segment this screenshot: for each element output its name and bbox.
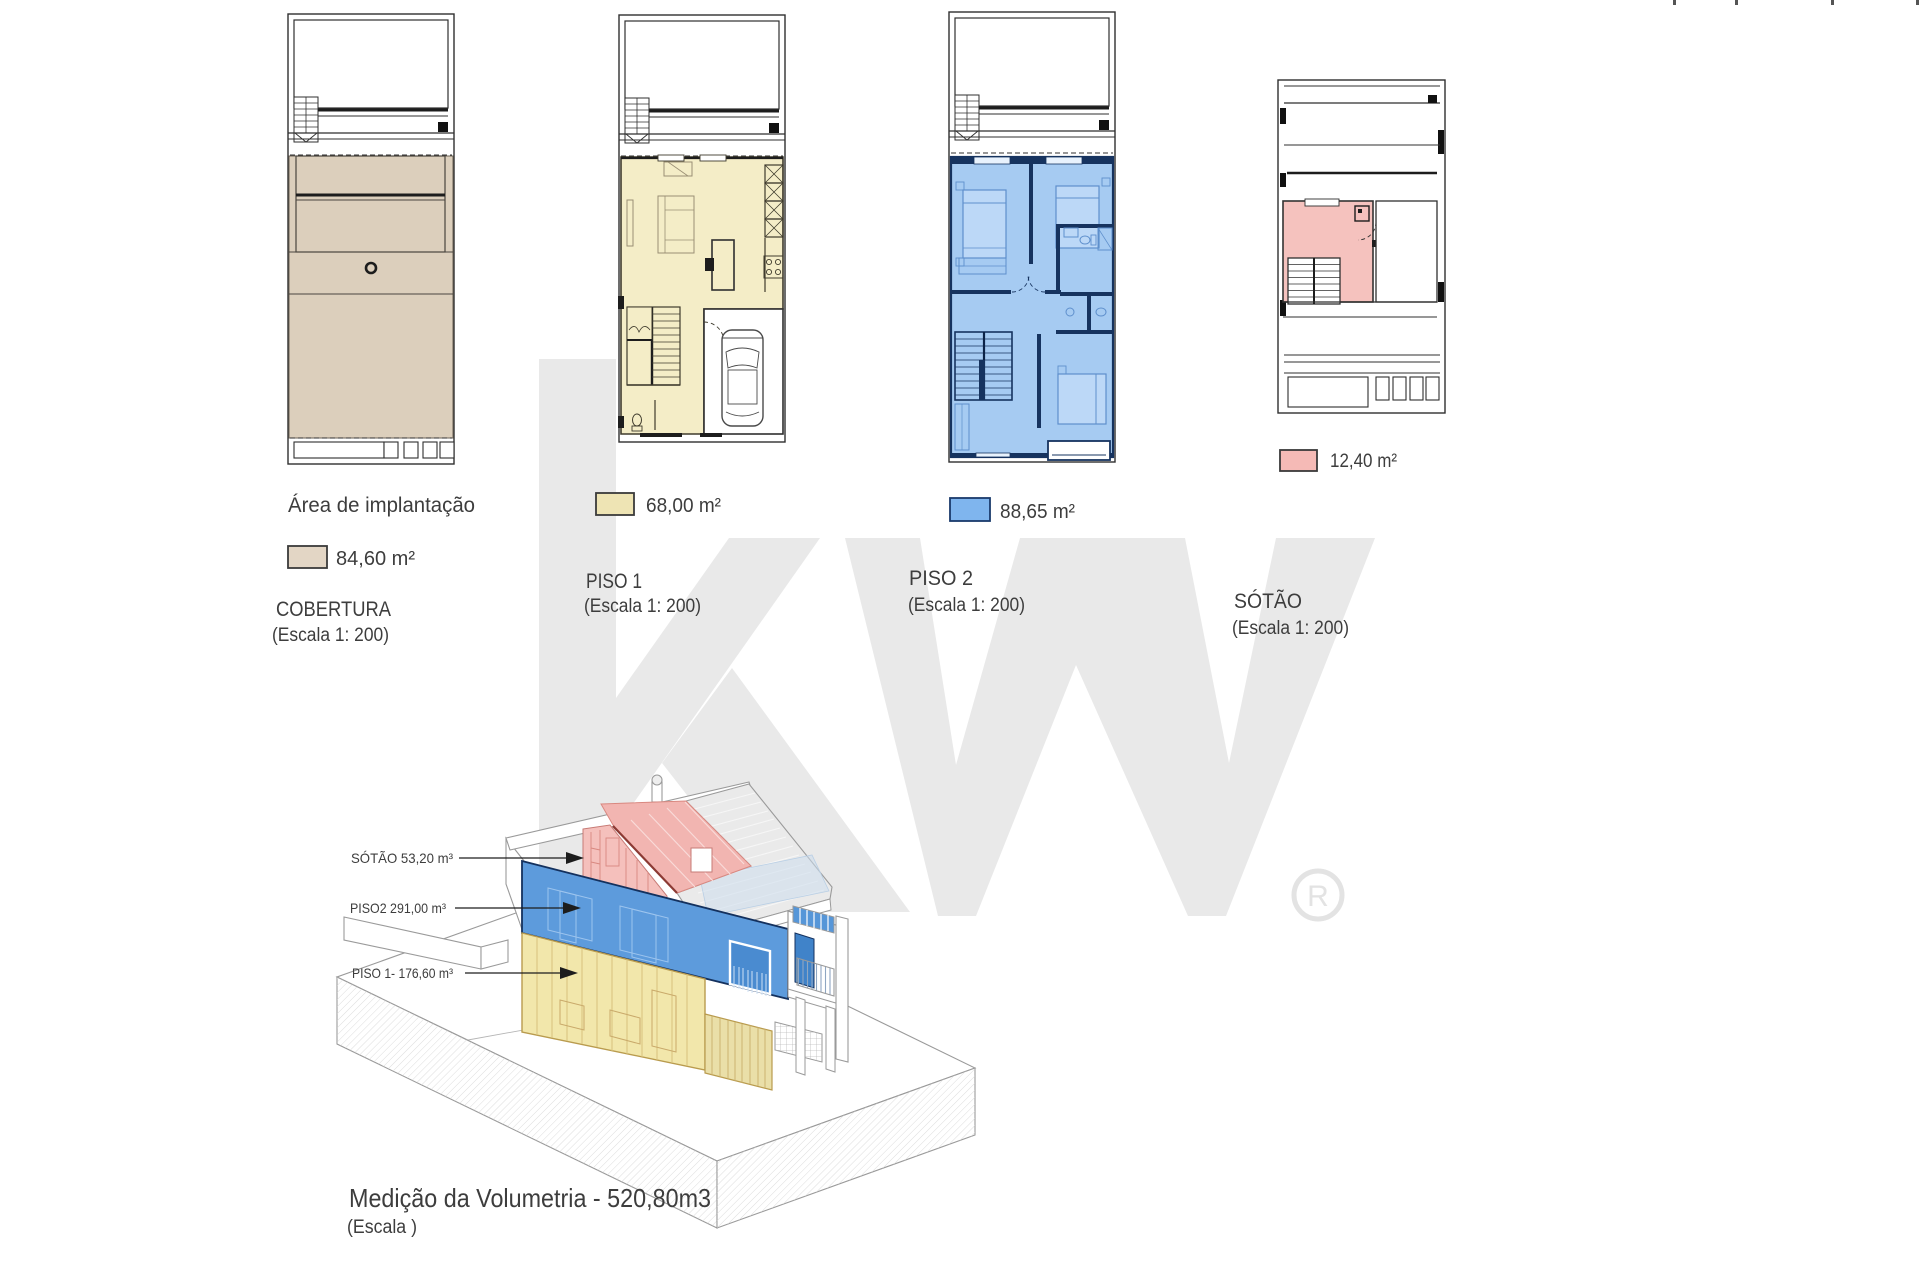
svg-text:Medição da Volumetria - 520,80: Medição da Volumetria - 520,80m3 [349,1183,711,1213]
svg-text:(Escala 1: 200): (Escala 1: 200) [272,625,389,646]
svg-text:88,65 m²: 88,65 m² [1000,501,1075,523]
svg-text:R: R [1307,880,1329,913]
svg-text:(Escala ): (Escala ) [347,1217,417,1238]
svg-text:Área de implantação: Área de implantação [288,494,475,517]
svg-text:SÓTÃO 53,20 m³: SÓTÃO 53,20 m³ [351,850,453,866]
svg-text:(Escala 1: 200): (Escala 1: 200) [1232,618,1349,639]
svg-text:SÓTÃO: SÓTÃO [1234,589,1302,613]
svg-text:PISO 1- 176,60 m³: PISO 1- 176,60 m³ [352,965,453,981]
svg-text:84,60 m²: 84,60 m² [336,548,415,570]
svg-text:PISO2 291,00 m³: PISO2 291,00 m³ [350,900,446,916]
svg-text:12,40 m²: 12,40 m² [1330,451,1397,472]
svg-text:PISO 1: PISO 1 [586,570,642,593]
svg-text:COBERTURA: COBERTURA [276,598,391,621]
svg-text:(Escala 1: 200): (Escala 1: 200) [584,596,701,617]
svg-text:(Escala 1: 200): (Escala 1: 200) [908,595,1025,616]
svg-text:PISO 2: PISO 2 [909,567,973,590]
svg-text:68,00 m²: 68,00 m² [646,495,721,517]
